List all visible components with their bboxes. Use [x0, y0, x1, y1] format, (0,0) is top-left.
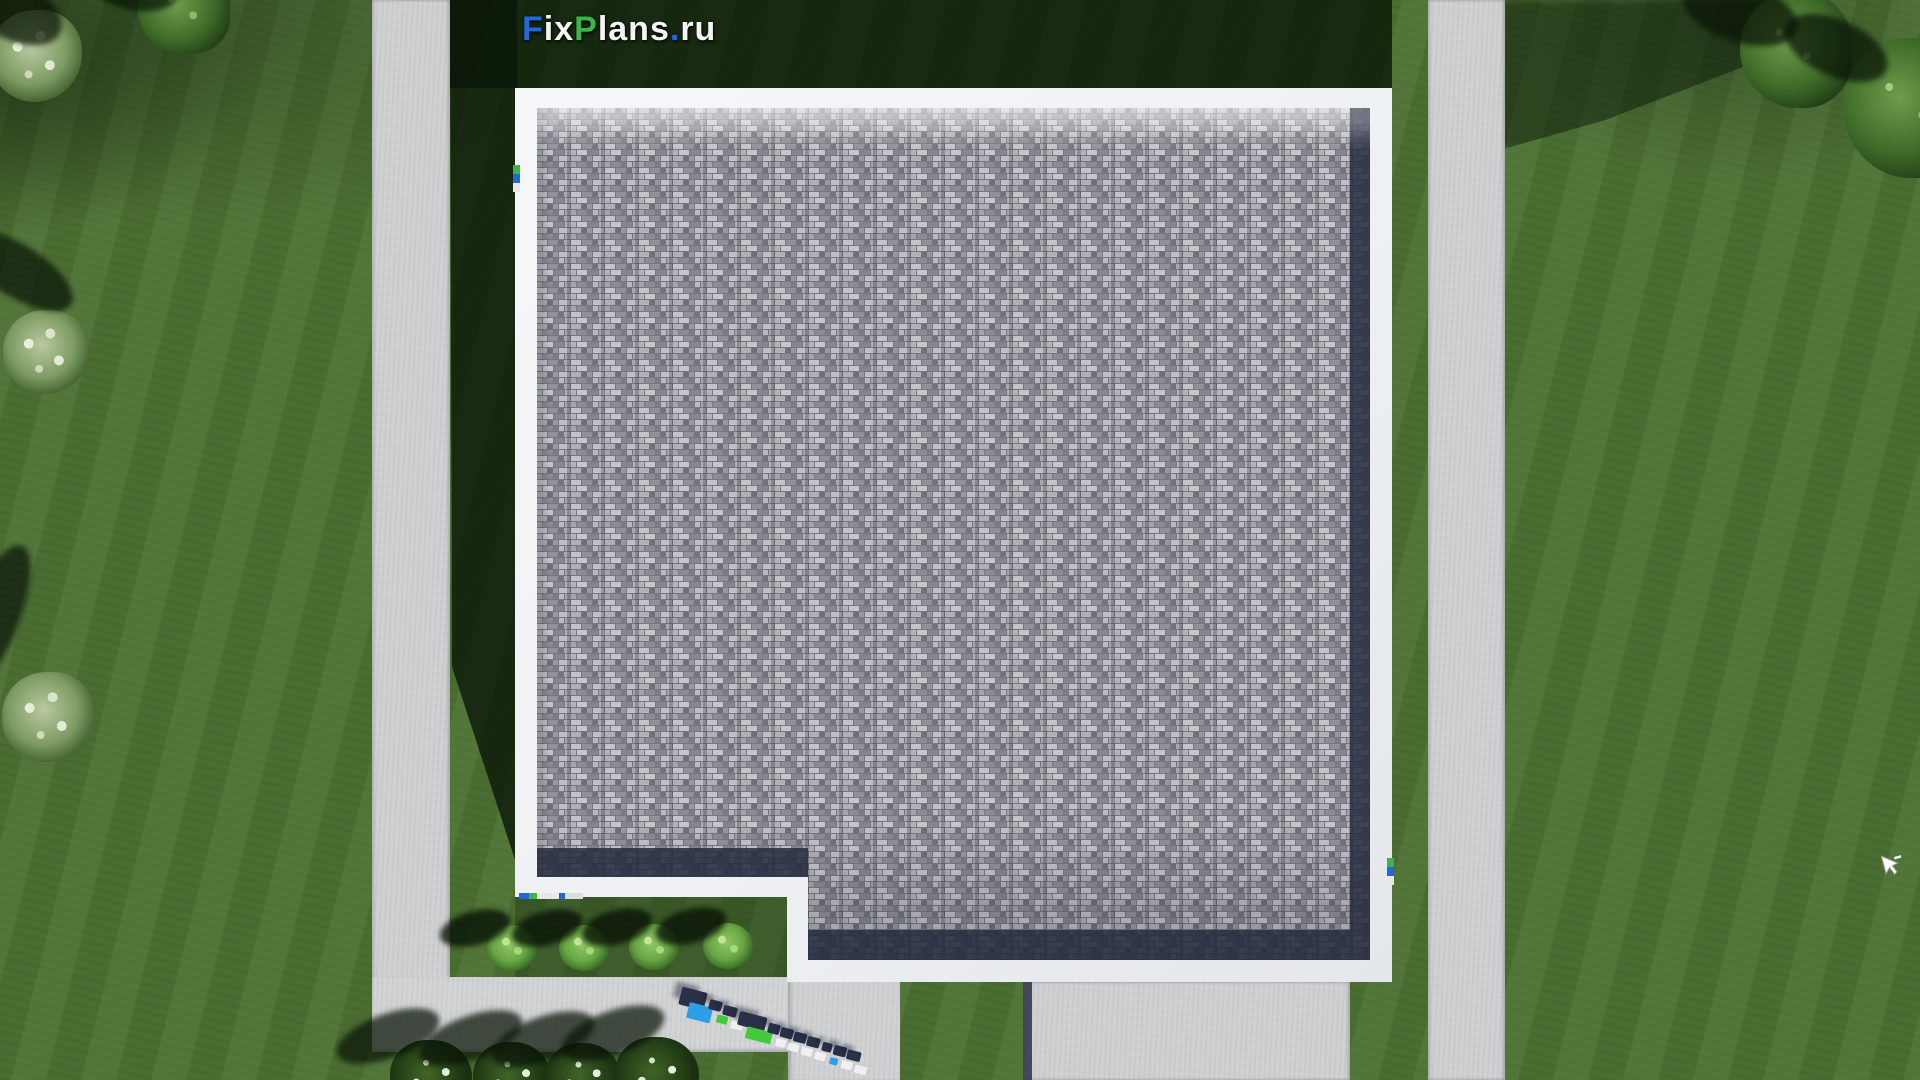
ground-logo-letter: [787, 1042, 800, 1052]
ground-logo-letter: [814, 1051, 827, 1061]
tiny-watermark: [519, 893, 583, 899]
tiny-watermark: [1387, 858, 1394, 885]
logo-segment: .: [670, 10, 680, 48]
logo-segment: F: [522, 10, 544, 48]
concrete-path-left: [372, 0, 450, 1052]
logo-segment: lans: [598, 10, 670, 48]
ground-logo-letter: [716, 1014, 729, 1024]
roof-shading-overlay: [537, 108, 1370, 960]
ground-logo-letter: [775, 1038, 787, 1048]
watermark-logo: FixPlans.ru: [522, 10, 716, 49]
ground-logo-letter: [730, 1020, 744, 1031]
tiny-watermark: [513, 165, 520, 192]
logo-segment: ix: [544, 10, 574, 48]
roof-tiles: [537, 108, 1370, 960]
logo-segment: ru: [680, 10, 716, 48]
site-aerial-render: FixPlans.ru: [0, 0, 1920, 1080]
ground-logo-letter: [829, 1057, 838, 1066]
concrete-path-right: [1428, 0, 1505, 1080]
ground-logo-letter: [745, 1026, 773, 1044]
building-roof-plan: [515, 88, 1392, 982]
driveway: [1023, 982, 1350, 1080]
mouse-cursor: [1876, 850, 1906, 880]
logo-segment: P: [574, 10, 598, 48]
ground-logo-letter: [800, 1047, 813, 1057]
courtyard-bush: [703, 923, 753, 969]
